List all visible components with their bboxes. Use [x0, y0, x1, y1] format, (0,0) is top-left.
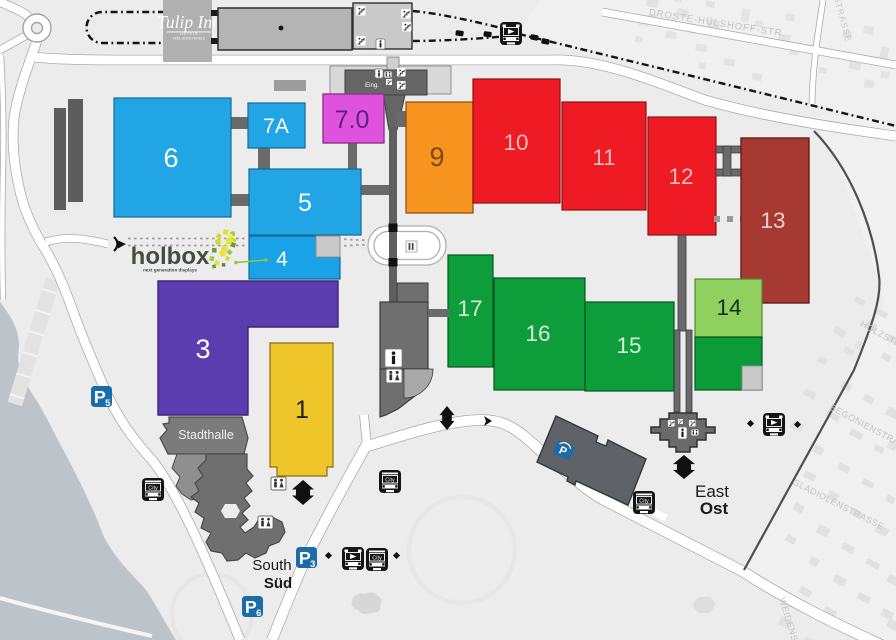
svg-text:6: 6	[256, 608, 261, 619]
svg-text:12: 12	[668, 164, 693, 189]
svg-text:Ost: Ost	[700, 499, 729, 518]
svg-text:H O T E L S: H O T E L S	[181, 32, 198, 36]
svg-text:City: City	[148, 486, 158, 492]
svg-text:next generation displays: next generation displays	[143, 268, 197, 273]
svg-text:9: 9	[429, 142, 444, 172]
svg-text:13: 13	[760, 208, 785, 233]
svg-text:FEEL GOOD HOTELS: FEEL GOOD HOTELS	[173, 37, 205, 41]
svg-text:Stadthalle: Stadthalle	[178, 428, 234, 442]
svg-text:P: P	[245, 597, 257, 617]
svg-text:15: 15	[616, 333, 641, 358]
svg-text:10: 10	[503, 130, 528, 155]
svg-text:City: City	[372, 556, 382, 562]
svg-text:Süd: Süd	[264, 575, 292, 592]
svg-text:4: 4	[276, 248, 288, 271]
svg-text:P: P	[94, 387, 106, 407]
svg-text:7.0: 7.0	[335, 106, 370, 134]
svg-text:City: City	[639, 499, 649, 505]
svg-text:7A: 7A	[263, 115, 289, 138]
svg-text:17: 17	[457, 296, 482, 321]
svg-text:holbox: holbox	[131, 243, 210, 270]
svg-text:3: 3	[195, 334, 210, 364]
svg-text:5: 5	[298, 189, 312, 217]
svg-text:P: P	[299, 548, 311, 568]
svg-text:Eing.: Eing.	[365, 83, 379, 89]
svg-text:City: City	[385, 478, 395, 484]
svg-text:6: 6	[163, 143, 178, 173]
svg-text:11: 11	[592, 145, 615, 170]
svg-text:16: 16	[525, 321, 550, 346]
svg-text:14: 14	[716, 295, 741, 320]
svg-text:1: 1	[295, 396, 309, 424]
svg-text:5: 5	[105, 398, 110, 409]
svg-text:3: 3	[310, 559, 315, 570]
svg-text:South: South	[252, 557, 291, 574]
